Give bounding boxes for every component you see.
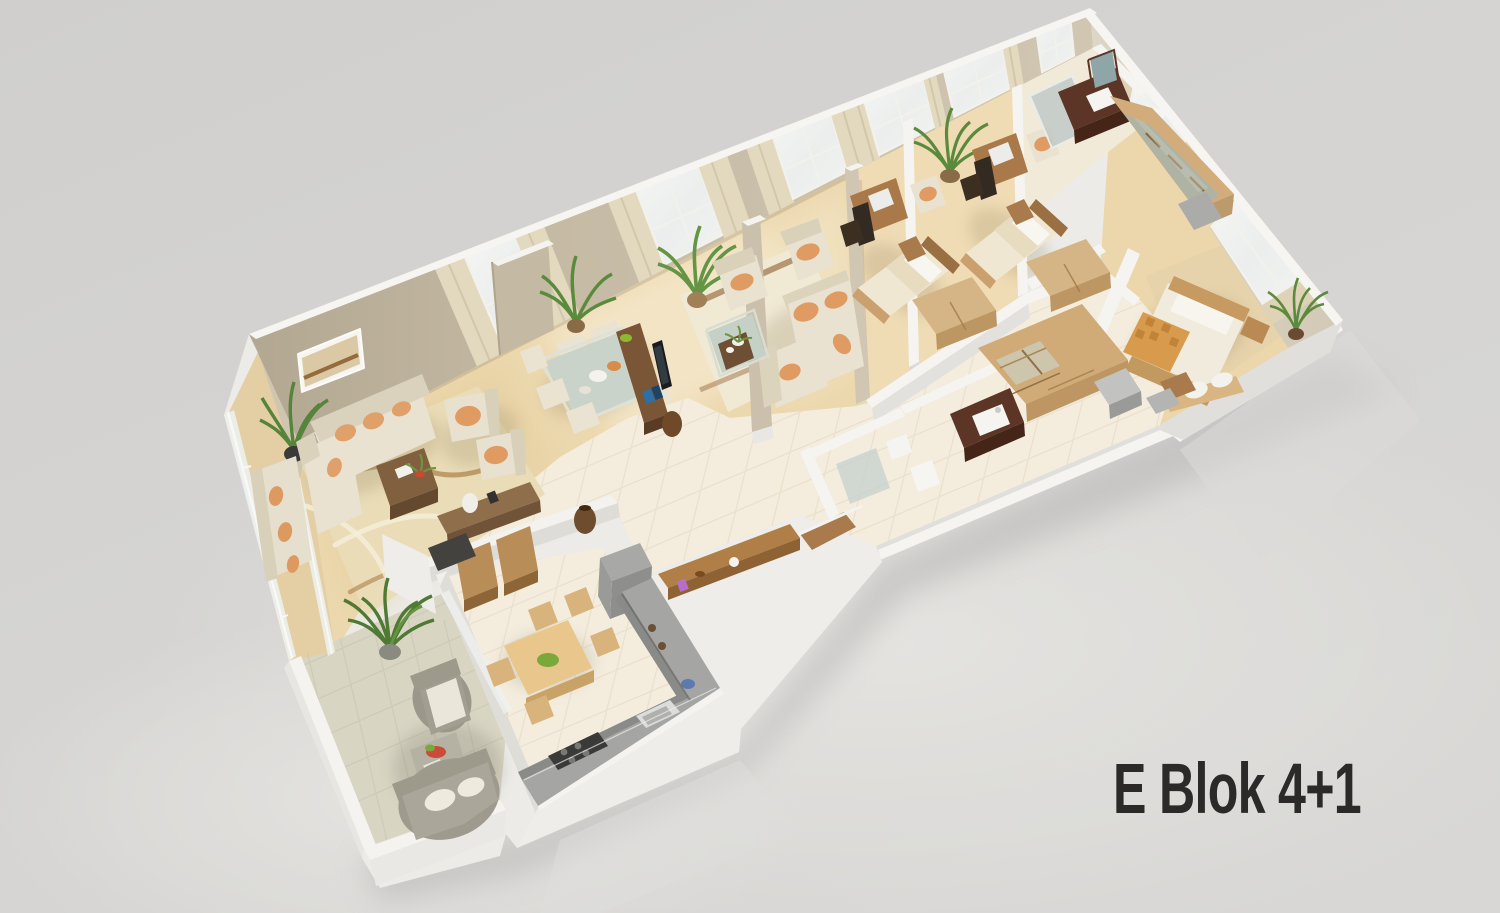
svg-text:E Blok 4+1: E Blok 4+1 xyxy=(1113,750,1361,829)
